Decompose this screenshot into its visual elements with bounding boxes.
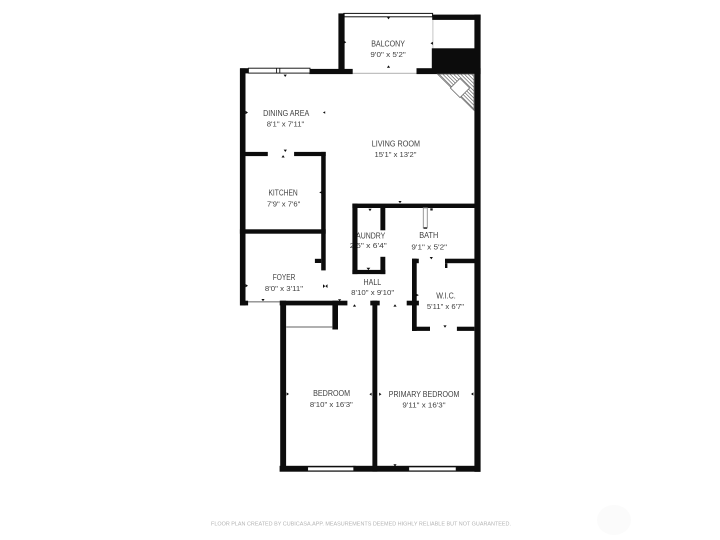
svg-text:FOYER: FOYER <box>273 273 296 282</box>
svg-text:LIVING ROOM: LIVING ROOM <box>372 139 420 148</box>
svg-text:DINING AREA: DINING AREA <box>263 109 310 118</box>
svg-text:KITCHEN: KITCHEN <box>268 188 297 197</box>
svg-text:7'9" x 7'6": 7'9" x 7'6" <box>267 200 301 209</box>
svg-text:8'1" x 7'11": 8'1" x 7'11" <box>267 120 305 129</box>
svg-text:HALL: HALL <box>364 278 382 287</box>
svg-text:9'11" x 16'3": 9'11" x 16'3" <box>402 401 445 410</box>
svg-text:8'10" x 16'3": 8'10" x 16'3" <box>310 400 353 409</box>
svg-text:9'0" x 5'2": 9'0" x 5'2" <box>370 50 406 59</box>
svg-text:9'1" x 5'2": 9'1" x 5'2" <box>411 242 447 251</box>
svg-text:15'1" x 13'2": 15'1" x 13'2" <box>375 150 417 159</box>
svg-text:8'10" x 9'10": 8'10" x 9'10" <box>351 288 394 297</box>
svg-text:BALCONY: BALCONY <box>371 39 406 48</box>
svg-text:PRIMARY BEDROOM: PRIMARY BEDROOM <box>389 390 460 399</box>
svg-text:BEDROOM: BEDROOM <box>313 389 350 398</box>
svg-text:BATH: BATH <box>419 231 438 240</box>
svg-text:FLOOR PLAN CREATED BY CUBICASA: FLOOR PLAN CREATED BY CUBICASA.APP. MEAS… <box>211 521 511 527</box>
svg-text:W.I.C.: W.I.C. <box>436 292 456 301</box>
svg-text:8'0" x 3'11": 8'0" x 3'11" <box>265 284 303 293</box>
svg-text:5'11" x 6'7": 5'11" x 6'7" <box>427 302 464 311</box>
